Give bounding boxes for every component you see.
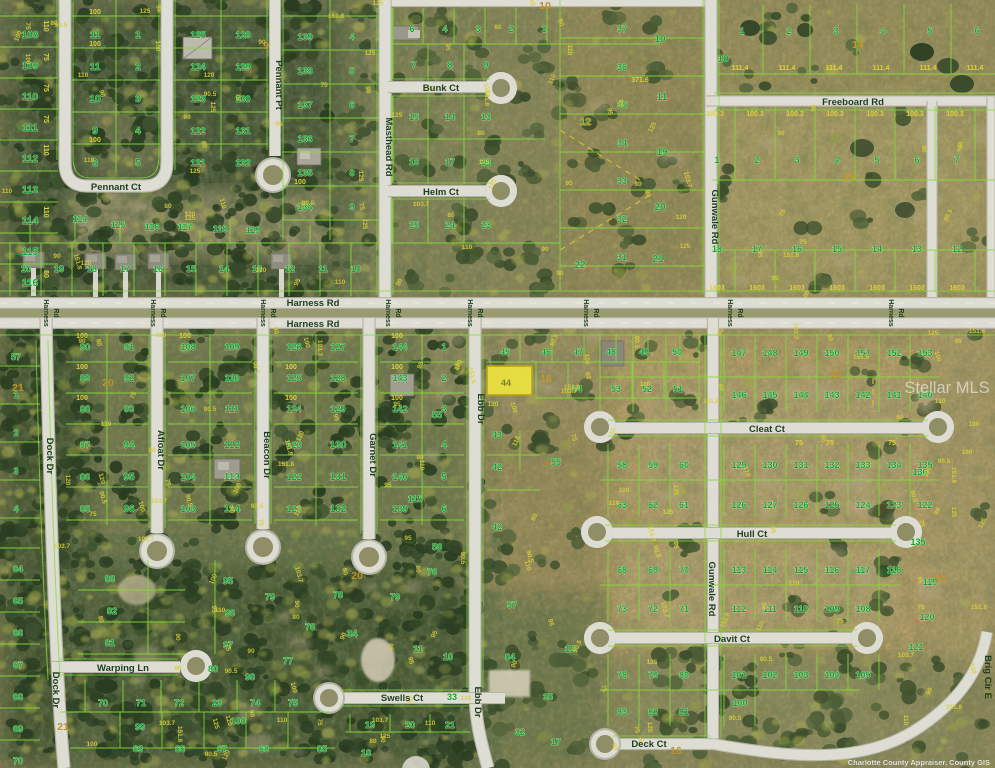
svg-text:115: 115 (408, 494, 423, 504)
svg-text:Beacon Dr: Beacon Dr (261, 431, 272, 479)
svg-text:110: 110 (902, 715, 909, 726)
svg-text:110: 110 (84, 157, 95, 164)
svg-text:46: 46 (541, 347, 551, 357)
svg-text:125: 125 (479, 159, 490, 166)
svg-text:42: 42 (492, 462, 502, 472)
svg-text:114: 114 (73, 214, 88, 224)
svg-text:21: 21 (12, 382, 24, 394)
svg-text:42: 42 (492, 522, 502, 532)
svg-text:138: 138 (297, 66, 312, 76)
svg-text:12: 12 (952, 244, 962, 254)
svg-text:17: 17 (120, 264, 130, 274)
svg-text:19: 19 (54, 264, 64, 274)
svg-text:143: 143 (392, 373, 407, 383)
svg-text:90.5: 90.5 (251, 503, 264, 510)
svg-text:126: 126 (793, 500, 808, 510)
svg-text:124: 124 (855, 500, 870, 510)
svg-text:103.7: 103.7 (151, 498, 168, 505)
svg-text:151.8: 151.8 (564, 384, 581, 391)
svg-text:123: 123 (886, 500, 901, 510)
svg-text:80: 80 (447, 212, 455, 219)
svg-text:103.7: 103.7 (792, 323, 799, 340)
svg-text:Rd: Rd (394, 308, 401, 317)
svg-text:44: 44 (501, 378, 511, 388)
svg-text:Pennant Ct: Pennant Ct (91, 182, 142, 193)
svg-text:110: 110 (2, 188, 13, 195)
svg-text:111.4: 111.4 (732, 65, 749, 72)
svg-text:6: 6 (914, 155, 919, 165)
svg-text:Harness: Harness (149, 299, 156, 327)
svg-text:Harness Rd: Harness Rd (287, 319, 340, 330)
svg-text:96: 96 (225, 608, 235, 618)
svg-text:111.4: 111.4 (920, 65, 937, 72)
svg-text:103.7: 103.7 (54, 543, 71, 550)
svg-text:Helm Ct: Helm Ct (423, 187, 460, 198)
svg-text:82: 82 (107, 606, 117, 616)
svg-text:21: 21 (652, 254, 664, 265)
svg-text:114: 114 (763, 565, 778, 575)
svg-text:5: 5 (874, 155, 879, 165)
svg-text:90.5: 90.5 (633, 336, 640, 349)
svg-text:4: 4 (135, 126, 141, 137)
svg-text:121: 121 (190, 158, 205, 168)
svg-text:118: 118 (887, 565, 902, 575)
svg-text:80: 80 (148, 447, 156, 454)
svg-text:125: 125 (647, 659, 658, 666)
svg-text:36: 36 (617, 62, 627, 72)
svg-text:100: 100 (619, 487, 630, 494)
svg-text:103.7: 103.7 (159, 720, 176, 727)
svg-text:90: 90 (247, 648, 255, 655)
svg-text:112: 112 (22, 154, 39, 165)
svg-text:10: 10 (443, 652, 453, 662)
svg-text:78: 78 (333, 590, 343, 600)
svg-text:90.5: 90.5 (302, 200, 315, 207)
svg-text:126: 126 (731, 500, 746, 510)
svg-text:68: 68 (259, 744, 269, 754)
svg-text:131: 131 (235, 126, 250, 136)
svg-text:100.3: 100.3 (826, 111, 844, 118)
svg-text:90.5: 90.5 (204, 406, 217, 413)
svg-text:80: 80 (292, 614, 300, 621)
svg-text:95: 95 (771, 275, 779, 282)
svg-text:3: 3 (475, 24, 480, 34)
svg-text:80: 80 (494, 24, 502, 31)
svg-text:75: 75 (320, 82, 328, 89)
svg-text:152: 152 (886, 348, 901, 358)
svg-text:89: 89 (80, 373, 90, 383)
svg-text:Harness: Harness (887, 299, 894, 327)
svg-text:110: 110 (225, 373, 240, 383)
svg-text:125: 125 (361, 219, 368, 230)
svg-text:Rd: Rd (269, 308, 276, 317)
svg-text:95: 95 (672, 541, 679, 549)
svg-text:14: 14 (219, 264, 229, 274)
svg-text:11: 11 (413, 644, 423, 654)
svg-text:7: 7 (954, 155, 959, 165)
svg-text:15: 15 (832, 244, 842, 254)
svg-text:108: 108 (855, 604, 870, 614)
svg-text:93: 93 (124, 404, 134, 414)
svg-text:100: 100 (391, 364, 403, 371)
svg-text:88: 88 (80, 404, 90, 414)
svg-text:80: 80 (369, 738, 377, 745)
svg-text:60: 60 (679, 460, 689, 470)
svg-text:19: 19 (656, 147, 668, 158)
svg-text:77: 77 (283, 656, 293, 666)
svg-text:132: 132 (824, 460, 839, 470)
svg-text:32: 32 (515, 727, 525, 737)
svg-text:100: 100 (391, 333, 403, 340)
svg-text:149: 149 (793, 348, 808, 358)
svg-text:144: 144 (392, 342, 407, 352)
svg-text:79: 79 (265, 592, 275, 602)
svg-text:7: 7 (411, 60, 416, 70)
svg-text:79: 79 (648, 670, 658, 680)
svg-text:1603: 1603 (789, 285, 805, 292)
svg-text:125: 125 (928, 330, 939, 337)
svg-text:90: 90 (364, 86, 371, 94)
svg-text:90: 90 (53, 253, 61, 260)
svg-text:79: 79 (390, 592, 400, 602)
svg-text:103.7: 103.7 (898, 652, 915, 659)
svg-text:33: 33 (447, 692, 457, 702)
svg-text:14: 14 (852, 39, 864, 51)
svg-text:90: 90 (777, 130, 785, 137)
svg-text:Warping Ln: Warping Ln (97, 663, 149, 674)
svg-text:80: 80 (477, 130, 485, 137)
svg-text:23: 23 (481, 220, 491, 230)
svg-text:143: 143 (824, 390, 839, 400)
svg-text:11: 11 (90, 62, 101, 73)
svg-text:90: 90 (920, 145, 927, 153)
svg-text:43: 43 (492, 430, 502, 440)
svg-text:122: 122 (190, 126, 205, 136)
svg-text:90: 90 (174, 633, 181, 641)
svg-text:110: 110 (42, 20, 49, 31)
svg-text:1603: 1603 (909, 285, 925, 292)
svg-text:122: 122 (917, 500, 932, 510)
svg-text:16: 16 (153, 264, 163, 274)
svg-text:141: 141 (886, 390, 901, 400)
svg-text:104: 104 (824, 670, 839, 680)
svg-text:11: 11 (318, 264, 328, 274)
svg-text:13: 13 (481, 112, 491, 122)
svg-text:90.5: 90.5 (459, 552, 466, 565)
svg-text:Stellar MLS: Stellar MLS (904, 379, 989, 397)
svg-text:120: 120 (919, 612, 934, 622)
svg-text:117: 117 (856, 565, 871, 575)
svg-text:Harness: Harness (726, 299, 733, 327)
svg-text:9: 9 (349, 202, 354, 212)
svg-text:90: 90 (258, 39, 266, 46)
svg-text:105: 105 (855, 670, 870, 680)
svg-text:59: 59 (648, 460, 658, 470)
svg-text:16: 16 (934, 573, 946, 585)
svg-text:125: 125 (190, 168, 201, 175)
svg-text:110: 110 (277, 717, 288, 724)
svg-text:8: 8 (447, 60, 452, 70)
svg-text:110: 110 (462, 244, 473, 251)
svg-text:75: 75 (836, 618, 844, 625)
svg-text:Harness: Harness (466, 299, 473, 327)
svg-text:118: 118 (213, 224, 228, 234)
svg-text:125: 125 (672, 485, 679, 496)
svg-text:2: 2 (786, 26, 791, 36)
svg-text:80: 80 (414, 565, 421, 573)
svg-text:111: 111 (22, 123, 38, 134)
svg-text:1: 1 (135, 30, 141, 41)
svg-text:131: 131 (330, 472, 347, 483)
svg-text:80: 80 (42, 270, 49, 278)
svg-text:Rd: Rd (52, 308, 59, 317)
svg-text:33: 33 (617, 176, 627, 186)
svg-text:11: 11 (657, 92, 668, 103)
svg-text:136: 136 (297, 134, 312, 144)
svg-text:80: 80 (208, 664, 218, 674)
svg-text:Cleat Ct: Cleat Ct (749, 424, 786, 435)
svg-text:Garnet Dr: Garnet Dr (367, 433, 378, 477)
svg-text:125: 125 (680, 243, 691, 250)
svg-text:1603: 1603 (869, 285, 885, 292)
svg-text:121: 121 (908, 642, 923, 652)
svg-text:3: 3 (794, 155, 799, 165)
svg-text:83: 83 (617, 707, 627, 717)
svg-text:57: 57 (507, 600, 517, 610)
svg-text:100: 100 (285, 395, 297, 402)
svg-text:90: 90 (293, 600, 300, 608)
svg-text:103.7: 103.7 (138, 536, 155, 543)
svg-text:Gunwale Rd: Gunwale Rd (709, 190, 720, 245)
svg-text:18: 18 (712, 244, 722, 254)
svg-text:3: 3 (13, 466, 18, 476)
svg-text:67: 67 (13, 660, 23, 670)
svg-text:103: 103 (793, 670, 808, 680)
svg-text:71: 71 (679, 604, 689, 614)
svg-text:125: 125 (365, 50, 376, 57)
svg-text:5: 5 (441, 472, 447, 483)
svg-text:68: 68 (617, 565, 627, 575)
svg-text:64: 64 (13, 564, 23, 574)
svg-text:115: 115 (111, 220, 126, 230)
svg-text:90: 90 (556, 270, 564, 277)
svg-text:90: 90 (183, 114, 191, 121)
svg-text:75: 75 (42, 53, 49, 61)
svg-text:96: 96 (123, 504, 135, 515)
svg-text:51: 51 (673, 384, 683, 394)
svg-text:151.8: 151.8 (853, 354, 870, 361)
svg-text:2: 2 (754, 155, 759, 165)
svg-text:80: 80 (50, 20, 58, 27)
svg-text:48: 48 (606, 347, 616, 357)
svg-text:21: 21 (445, 720, 455, 730)
svg-text:140: 140 (392, 472, 407, 482)
svg-text:111.4: 111.4 (826, 65, 843, 72)
svg-text:20: 20 (654, 202, 666, 213)
svg-text:18: 18 (361, 748, 371, 758)
svg-text:66: 66 (13, 628, 23, 638)
svg-text:75: 75 (42, 115, 49, 123)
svg-text:14: 14 (872, 244, 882, 254)
svg-text:Davit Ct: Davit Ct (714, 634, 751, 645)
svg-text:22: 22 (574, 260, 586, 271)
svg-text:Rd: Rd (592, 308, 599, 317)
svg-text:90.5: 90.5 (225, 668, 238, 675)
svg-text:110: 110 (418, 460, 425, 471)
svg-text:116: 116 (22, 278, 39, 289)
svg-text:75: 75 (42, 84, 49, 92)
svg-text:125: 125 (663, 509, 674, 516)
svg-text:4: 4 (349, 32, 354, 42)
svg-text:80: 80 (634, 181, 642, 188)
svg-text:55: 55 (432, 410, 442, 420)
svg-text:125: 125 (824, 500, 839, 510)
svg-text:113: 113 (22, 185, 39, 196)
svg-text:95: 95 (444, 43, 451, 51)
svg-text:151.8: 151.8 (969, 328, 986, 335)
svg-text:110: 110 (22, 92, 39, 103)
svg-text:82: 82 (648, 707, 658, 717)
svg-text:110: 110 (42, 144, 49, 155)
svg-text:75: 75 (795, 440, 803, 447)
svg-text:34: 34 (617, 138, 627, 148)
svg-text:Harness: Harness (384, 299, 391, 327)
svg-text:68: 68 (13, 692, 23, 702)
svg-text:16: 16 (409, 157, 419, 167)
svg-text:90.5: 90.5 (204, 91, 217, 98)
svg-text:139: 139 (392, 504, 407, 514)
svg-text:125: 125 (140, 8, 151, 15)
svg-text:Brig Cir E: Brig Cir E (982, 655, 993, 699)
svg-text:117: 117 (178, 222, 193, 232)
svg-text:70: 70 (13, 756, 23, 766)
svg-text:58: 58 (617, 460, 627, 470)
svg-text:Harness: Harness (259, 299, 266, 327)
svg-text:100.3: 100.3 (866, 111, 884, 118)
svg-text:113: 113 (224, 472, 241, 483)
svg-text:4: 4 (834, 155, 839, 165)
svg-text:1: 1 (441, 342, 446, 352)
svg-text:116: 116 (825, 565, 840, 575)
svg-text:146: 146 (731, 390, 746, 400)
svg-text:115: 115 (22, 247, 39, 258)
svg-text:125: 125 (380, 733, 391, 740)
svg-text:1603: 1603 (949, 285, 965, 292)
svg-text:69: 69 (648, 565, 658, 575)
svg-text:73: 73 (617, 604, 627, 614)
svg-text:80: 80 (164, 203, 172, 210)
svg-text:131: 131 (793, 460, 808, 470)
svg-text:119: 119 (246, 225, 261, 235)
svg-text:6: 6 (409, 24, 414, 34)
svg-text:151.8: 151.8 (703, 398, 720, 405)
svg-text:57: 57 (11, 352, 21, 362)
svg-text:81: 81 (679, 707, 689, 717)
svg-text:4: 4 (13, 504, 18, 514)
svg-text:125: 125 (646, 722, 653, 733)
svg-text:24: 24 (445, 220, 455, 230)
svg-text:1: 1 (541, 24, 546, 34)
svg-text:120: 120 (204, 72, 215, 79)
svg-text:75: 75 (89, 511, 97, 518)
svg-text:108: 108 (22, 30, 39, 41)
svg-text:151.8: 151.8 (950, 467, 957, 484)
svg-text:100: 100 (294, 179, 306, 186)
svg-text:100: 100 (89, 41, 101, 48)
svg-text:25: 25 (409, 220, 419, 230)
svg-text:139: 139 (297, 32, 312, 42)
svg-text:16: 16 (830, 369, 842, 381)
svg-text:Afloat Dr: Afloat Dr (155, 430, 166, 470)
svg-text:124: 124 (190, 62, 205, 72)
svg-text:109: 109 (224, 342, 239, 352)
svg-text:108: 108 (180, 342, 195, 352)
svg-text:100: 100 (154, 41, 161, 52)
svg-text:72: 72 (174, 698, 184, 708)
svg-text:120: 120 (935, 398, 946, 405)
svg-text:100: 100 (732, 698, 747, 708)
svg-text:75: 75 (24, 22, 31, 30)
svg-text:151.8: 151.8 (278, 461, 295, 468)
svg-text:153: 153 (917, 348, 932, 358)
svg-text:101: 101 (731, 670, 746, 680)
svg-text:90.5: 90.5 (938, 458, 951, 465)
svg-text:81: 81 (105, 638, 115, 648)
svg-text:61: 61 (679, 500, 689, 510)
svg-text:125: 125 (209, 102, 216, 113)
svg-text:100: 100 (76, 395, 88, 402)
svg-text:10: 10 (654, 34, 666, 45)
svg-text:110: 110 (101, 421, 112, 428)
svg-text:15: 15 (843, 171, 855, 183)
svg-text:72: 72 (648, 604, 658, 614)
svg-text:Charlotte County Appraiser, Co: Charlotte County Appraiser, County GIS (848, 758, 990, 767)
svg-text:20: 20 (102, 377, 114, 389)
svg-text:90.5: 90.5 (729, 715, 742, 722)
svg-text:116: 116 (145, 222, 160, 232)
svg-text:111.4: 111.4 (779, 65, 796, 72)
svg-text:56: 56 (432, 542, 442, 552)
svg-text:100: 100 (285, 364, 297, 371)
svg-text:90: 90 (541, 246, 549, 253)
svg-text:Freeboard Rd: Freeboard Rd (822, 97, 884, 108)
svg-text:144: 144 (793, 390, 808, 400)
svg-text:Ebb Dr: Ebb Dr (475, 393, 486, 424)
svg-text:103.7: 103.7 (413, 201, 430, 208)
svg-text:127: 127 (762, 500, 777, 510)
svg-text:50: 50 (672, 347, 682, 357)
svg-text:15: 15 (186, 264, 196, 274)
svg-text:95: 95 (404, 535, 412, 542)
svg-text:1603: 1603 (829, 285, 845, 292)
svg-text:120: 120 (488, 401, 499, 408)
svg-text:110: 110 (156, 332, 167, 339)
svg-text:100: 100 (24, 54, 31, 65)
svg-text:147: 147 (731, 348, 746, 358)
svg-text:74: 74 (250, 698, 260, 708)
svg-text:1603: 1603 (749, 285, 765, 292)
svg-text:114: 114 (22, 216, 39, 227)
svg-text:31: 31 (617, 252, 627, 262)
svg-text:133: 133 (855, 460, 870, 470)
svg-text:71: 71 (136, 698, 146, 708)
svg-text:Deck Ct: Deck Ct (631, 739, 667, 750)
svg-text:120: 120 (64, 475, 71, 486)
svg-text:76: 76 (305, 622, 315, 632)
svg-text:129: 129 (235, 62, 250, 72)
svg-text:141: 141 (392, 440, 407, 450)
svg-text:87: 87 (80, 440, 90, 450)
